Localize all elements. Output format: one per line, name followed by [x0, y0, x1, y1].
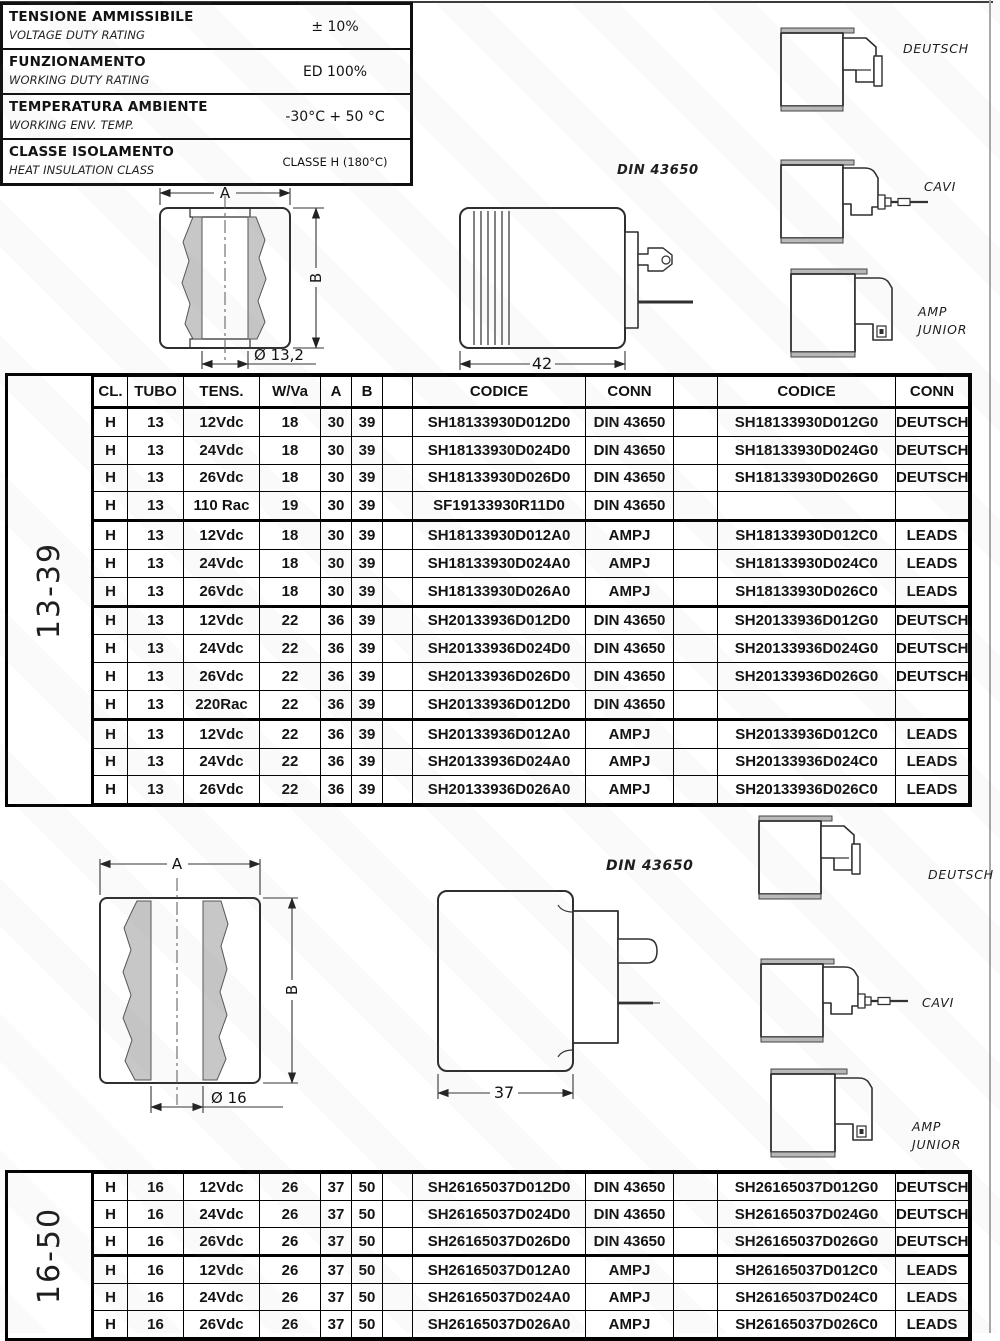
cell-codice-2: SH20133936D024C0 [718, 748, 896, 776]
cell-tens: 26Vdc [184, 1311, 260, 1338]
spec-label-english: WORKING DUTY RATING [9, 73, 260, 87]
cell-tubo: 13 [128, 464, 184, 492]
cell-codice-2: SH26165037D012C0 [718, 1256, 896, 1284]
cell-codice-2 [718, 690, 896, 719]
cell-conn-1: AMPJ [586, 1256, 674, 1284]
cell-codice-1: SH18133930D026A0 [413, 577, 586, 606]
cell-spacer [383, 464, 413, 492]
spec-labels: TENSIONE AMMISSIBILE VOLTAGE DUTY RATING [3, 5, 260, 48]
cell-codice-1: SH18133930D026D0 [413, 464, 586, 492]
cell-spacer-2 [674, 606, 718, 635]
cell-conn-2: DEUTSCH [896, 464, 969, 492]
cell-spacer-2 [674, 521, 718, 550]
cell-spacer [383, 1174, 413, 1201]
table-row: H 13 220Rac 22 36 39 SH20133936D012D0 DI… [94, 690, 969, 719]
cell-codice-2: SH20133936D012G0 [718, 606, 896, 635]
spec-value: ED 100% [260, 50, 410, 93]
cell-a: 37 [321, 1228, 352, 1256]
cell-conn-1: DIN 43650 [586, 436, 674, 464]
cell-conn-2: DEUTSCH [896, 1174, 969, 1201]
cell-spacer [383, 549, 413, 577]
cell-spacer-2 [674, 492, 718, 521]
cell-b: 39 [352, 719, 383, 748]
cell-codice-1: SH18133930D012D0 [413, 408, 586, 437]
din-connector-block [573, 911, 618, 1043]
spec-label-italian: TEMPERATURA AMBIENTE [9, 99, 260, 115]
cell-tens: 12Vdc [184, 719, 260, 748]
cell-spacer [383, 690, 413, 719]
cell-spacer-2 [674, 635, 718, 663]
cell-conn-1: AMPJ [586, 549, 674, 577]
cell-b: 50 [352, 1256, 383, 1284]
cell-spacer-2 [674, 1174, 718, 1201]
spec-row: TENSIONE AMMISSIBILE VOLTAGE DUTY RATING… [3, 5, 410, 50]
cell-cl: H [94, 776, 128, 804]
cell-conn-1: AMPJ [586, 1311, 674, 1338]
cell-spacer-2 [674, 719, 718, 748]
cell-tubo: 16 [128, 1201, 184, 1228]
cell-codice-2: SH20133936D024G0 [718, 635, 896, 663]
header-wva: W/Va [260, 377, 321, 408]
header-row: CL. TUBO TENS. W/Va A B CODICE CONN CODI… [94, 377, 969, 408]
cell-tubo: 13 [128, 577, 184, 606]
spec-value: -30°C + 50 °C [260, 95, 410, 138]
spec-label-english: VOLTAGE DUTY RATING [9, 28, 260, 42]
coil-cross-section-drawing-1: A B Ø 13,2 [148, 183, 333, 373]
cell-wva: 26 [260, 1256, 321, 1284]
cell-codice-2: SH18133930D026G0 [718, 464, 896, 492]
cell-spacer [383, 776, 413, 804]
cell-codice-1: SH20133936D012D0 [413, 690, 586, 719]
cell-b: 50 [352, 1174, 383, 1201]
cell-spacer-2 [674, 408, 718, 437]
cell-b: 39 [352, 408, 383, 437]
cell-spacer-2 [674, 1228, 718, 1256]
cell-conn-1: AMPJ [586, 577, 674, 606]
group-label: 13-39 [32, 541, 67, 638]
header-codice-1: CODICE [413, 377, 586, 408]
cell-codice-1: SH26165037D024A0 [413, 1284, 586, 1311]
cell-wva: 22 [260, 690, 321, 719]
cell-a: 36 [321, 663, 352, 691]
cell-codice-2: SH18133930D012C0 [718, 521, 896, 550]
spec-label-italian: FUNZIONAMENTO [9, 54, 260, 70]
cell-a: 37 [321, 1201, 352, 1228]
cell-conn-1: DIN 43650 [586, 492, 674, 521]
cell-spacer [383, 1311, 413, 1338]
cell-tens: 110 Rac [184, 492, 260, 521]
table-row: H 13 12Vdc 22 36 39 SH20133936D012D0 DIN… [94, 606, 969, 635]
cell-conn-2: LEADS [896, 719, 969, 748]
cell-conn-2: LEADS [896, 1311, 969, 1338]
cell-a: 36 [321, 776, 352, 804]
cell-wva: 26 [260, 1228, 321, 1256]
cell-wva: 22 [260, 719, 321, 748]
cell-wva: 19 [260, 492, 321, 521]
cell-tubo: 16 [128, 1174, 184, 1201]
din-pin-large [618, 939, 657, 963]
cell-cl: H [94, 1256, 128, 1284]
cell-cl: H [94, 1311, 128, 1338]
cell-spacer-2 [674, 690, 718, 719]
cell-cl: H [94, 1284, 128, 1311]
cell-conn-1: DIN 43650 [586, 690, 674, 719]
cell-spacer-2 [674, 748, 718, 776]
cell-spacer [383, 1228, 413, 1256]
cell-wva: 18 [260, 577, 321, 606]
dim-label-diameter: Ø 16 [211, 1089, 247, 1107]
cell-tubo: 16 [128, 1228, 184, 1256]
cell-conn-2: LEADS [896, 1256, 969, 1284]
cell-a: 30 [321, 549, 352, 577]
cell-spacer [383, 521, 413, 550]
deutsch-label-2: DEUTSCH [928, 866, 994, 884]
cell-a: 36 [321, 690, 352, 719]
cell-codice-2: SH18133930D026C0 [718, 577, 896, 606]
din-connector-tab [638, 248, 672, 271]
cell-codice-2: SH26165037D024G0 [718, 1201, 896, 1228]
cell-tens: 12Vdc [184, 521, 260, 550]
cell-conn-2: LEADS [896, 577, 969, 606]
table-row: H 13 24Vdc 22 36 39 SH20133936D024D0 DIN… [94, 635, 969, 663]
amp-junior-label-1: AMP JUNIOR [918, 303, 967, 339]
cell-wva: 18 [260, 464, 321, 492]
table-row: H 13 26Vdc 18 30 39 SH18133930D026D0 DIN… [94, 464, 969, 492]
cell-tens: 12Vdc [184, 408, 260, 437]
dim-label-37: 37 [494, 1083, 514, 1102]
spec-value: CLASSE H (180°C) [260, 140, 410, 183]
header-a: A [321, 377, 352, 408]
table-row: H 16 26Vdc 26 37 50 SH26165037D026A0 AMP… [94, 1311, 969, 1338]
table-row: H 13 24Vdc 22 36 39 SH20133936D024A0 AMP… [94, 748, 969, 776]
cell-wva: 22 [260, 635, 321, 663]
cell-a: 37 [321, 1311, 352, 1338]
cell-wva: 22 [260, 748, 321, 776]
cell-cl: H [94, 521, 128, 550]
cell-tens: 24Vdc [184, 1201, 260, 1228]
cell-tens: 26Vdc [184, 663, 260, 691]
cell-codice-2: SH26165037D026C0 [718, 1311, 896, 1338]
cell-codice-1: SH20133936D026A0 [413, 776, 586, 804]
data-table: H 16 12Vdc 26 37 50 SH26165037D012D0 DIN… [93, 1173, 969, 1338]
cell-cl: H [94, 464, 128, 492]
cell-spacer-2 [674, 1284, 718, 1311]
cell-wva: 18 [260, 408, 321, 437]
cell-codice-2: SH18133930D012G0 [718, 408, 896, 437]
din-coil-drawing-2: 37 [420, 853, 670, 1103]
cell-cl: H [94, 492, 128, 521]
cell-spacer [383, 577, 413, 606]
cell-tubo: 13 [128, 690, 184, 719]
cell-conn-2: LEADS [896, 549, 969, 577]
cell-conn-2: DEUTSCH [896, 635, 969, 663]
cell-wva: 22 [260, 776, 321, 804]
group-label-box: 16-50 [8, 1173, 93, 1338]
cell-conn-1: AMPJ [586, 521, 674, 550]
spec-row: TEMPERATURA AMBIENTE WORKING ENV. TEMP. … [3, 95, 410, 140]
table-row: H 16 26Vdc 26 37 50 SH26165037D026D0 DIN… [94, 1228, 969, 1256]
cell-codice-1: SF19133930R11D0 [413, 492, 586, 521]
header-conn-1: CONN [586, 377, 674, 408]
dim-label-b: B [307, 273, 325, 283]
cell-wva: 26 [260, 1284, 321, 1311]
cell-conn-1: DIN 43650 [586, 1228, 674, 1256]
cavi-label-2: CAVI [922, 994, 954, 1012]
din-43650-label-1: DIN 43650 [617, 163, 699, 178]
coil-cross-section-drawing-2: A B Ø 16 [85, 833, 315, 1118]
table-row: H 13 26Vdc 22 36 39 SH20133936D026A0 AMP… [94, 776, 969, 804]
cell-tubo: 13 [128, 663, 184, 691]
cell-wva: 22 [260, 606, 321, 635]
table-row: H 13 12Vdc 22 36 39 SH20133936D012A0 AMP… [94, 719, 969, 748]
cell-conn-2 [896, 492, 969, 521]
cell-tubo: 13 [128, 748, 184, 776]
cell-spacer-2 [674, 663, 718, 691]
cell-conn-1: AMPJ [586, 748, 674, 776]
cell-cl: H [94, 1174, 128, 1201]
cell-tubo: 13 [128, 436, 184, 464]
amp-junior-connector-drawing-1 [788, 266, 908, 366]
cell-b: 39 [352, 748, 383, 776]
cell-conn-1: DIN 43650 [586, 408, 674, 437]
cell-conn-2: DEUTSCH [896, 1201, 969, 1228]
cell-tubo: 13 [128, 606, 184, 635]
cell-wva: 18 [260, 549, 321, 577]
cell-codice-1: SH26165037D026D0 [413, 1228, 586, 1256]
dim-label-b: B [283, 985, 301, 995]
cell-tens: 12Vdc [184, 606, 260, 635]
header-tubo: TUBO [128, 377, 184, 408]
coil-body-outline [100, 898, 260, 1083]
cell-b: 39 [352, 549, 383, 577]
cell-conn-1: AMPJ [586, 1284, 674, 1311]
spec-row: FUNZIONAMENTO WORKING DUTY RATING ED 100… [3, 50, 410, 95]
cell-a: 36 [321, 748, 352, 776]
cell-codice-2: SH20133936D012C0 [718, 719, 896, 748]
cavi-label-1: CAVI [924, 178, 956, 196]
cell-tubo: 16 [128, 1284, 184, 1311]
cell-conn-1: DIN 43650 [586, 635, 674, 663]
cell-codice-1: SH18133930D012A0 [413, 521, 586, 550]
cell-codice-2: SH18133930D024C0 [718, 549, 896, 577]
table-row: H 13 24Vdc 18 30 39 SH18133930D024D0 DIN… [94, 436, 969, 464]
cell-spacer-2 [674, 549, 718, 577]
cell-conn-2: DEUTSCH [896, 436, 969, 464]
deutsch-connector-drawing-1 [778, 25, 893, 117]
cell-codice-2: SH18133930D024G0 [718, 436, 896, 464]
cell-a: 30 [321, 436, 352, 464]
cell-conn-2 [896, 690, 969, 719]
cell-conn-2: LEADS [896, 748, 969, 776]
cell-a: 30 [321, 521, 352, 550]
cell-b: 50 [352, 1284, 383, 1311]
cell-cl: H [94, 1228, 128, 1256]
cell-b: 39 [352, 635, 383, 663]
cell-spacer [383, 492, 413, 521]
cell-spacer [383, 606, 413, 635]
cell-conn-1: DIN 43650 [586, 663, 674, 691]
cell-spacer [383, 663, 413, 691]
cell-spacer-2 [674, 1201, 718, 1228]
cell-codice-1: SH26165037D012A0 [413, 1256, 586, 1284]
cell-conn-1: AMPJ [586, 776, 674, 804]
cell-cl: H [94, 635, 128, 663]
cell-b: 50 [352, 1311, 383, 1338]
table-row: H 13 26Vdc 18 30 39 SH18133930D026A0 AMP… [94, 577, 969, 606]
deutsch-label-1: DEUTSCH [903, 40, 969, 58]
cell-tens: 24Vdc [184, 436, 260, 464]
cell-codice-1: SH18133930D024A0 [413, 549, 586, 577]
cell-a: 36 [321, 606, 352, 635]
cell-cl: H [94, 748, 128, 776]
amp-junior-connector-drawing-2 [768, 1066, 888, 1166]
spec-label-english: HEAT INSULATION CLASS [9, 163, 260, 177]
cell-b: 39 [352, 776, 383, 804]
table-row: H 13 12Vdc 18 30 39 SH18133930D012A0 AMP… [94, 521, 969, 550]
din-coil-body [460, 208, 625, 348]
din-coil-drawing-1: 42 [450, 190, 710, 375]
cell-b: 39 [352, 492, 383, 521]
dim-label-42: 42 [532, 354, 552, 373]
cell-codice-2: SH20133936D026G0 [718, 663, 896, 691]
table-row: H 16 12Vdc 26 37 50 SH26165037D012D0 DIN… [94, 1174, 969, 1201]
cell-tubo: 13 [128, 549, 184, 577]
cell-a: 30 [321, 577, 352, 606]
cell-codice-2: SH26165037D026G0 [718, 1228, 896, 1256]
cell-tubo: 13 [128, 635, 184, 663]
cell-spacer [383, 1284, 413, 1311]
spec-value: ± 10% [260, 5, 410, 48]
cell-b: 39 [352, 606, 383, 635]
cell-conn-2: LEADS [896, 521, 969, 550]
header-codice-2: CODICE [718, 377, 896, 408]
cell-a: 37 [321, 1174, 352, 1201]
din-coil-body [438, 891, 573, 1071]
cell-b: 39 [352, 521, 383, 550]
cell-conn-2: DEUTSCH [896, 408, 969, 437]
cell-wva: 22 [260, 663, 321, 691]
header-spacer [383, 377, 413, 408]
spec-table: TENSIONE AMMISSIBILE VOLTAGE DUTY RATING… [0, 2, 413, 186]
cell-tubo: 13 [128, 719, 184, 748]
cell-wva: 26 [260, 1311, 321, 1338]
cell-cl: H [94, 408, 128, 437]
cell-cl: H [94, 690, 128, 719]
cell-spacer [383, 719, 413, 748]
cell-b: 39 [352, 464, 383, 492]
cell-cl: H [94, 549, 128, 577]
cell-conn-2: DEUTSCH [896, 606, 969, 635]
cell-b: 39 [352, 690, 383, 719]
coil-table-13-39: 13-39 CL. TUBO TENS. W/Va A B CODICE CON… [5, 373, 972, 807]
group-label-box: 13-39 [8, 376, 93, 804]
cell-wva: 26 [260, 1201, 321, 1228]
page: { "specs": { "rows": [ {"it": "TENSIONE … [0, 0, 1000, 1333]
cell-codice-1: SH20133936D024A0 [413, 748, 586, 776]
cell-b: 50 [352, 1201, 383, 1228]
cell-b: 39 [352, 577, 383, 606]
cell-codice-1: SH20133936D024D0 [413, 635, 586, 663]
cell-codice-2: SH20133936D026C0 [718, 776, 896, 804]
cell-spacer-2 [674, 464, 718, 492]
cell-a: 36 [321, 635, 352, 663]
table-row: H 13 26Vdc 22 36 39 SH20133936D026D0 DIN… [94, 663, 969, 691]
din-connector-plate [625, 232, 638, 328]
cell-tens: 26Vdc [184, 464, 260, 492]
cell-tens: 26Vdc [184, 776, 260, 804]
data-table: CL. TUBO TENS. W/Va A B CODICE CONN CODI… [93, 376, 969, 804]
cell-tubo: 16 [128, 1311, 184, 1338]
cell-tens: 24Vdc [184, 1284, 260, 1311]
cell-conn-1: DIN 43650 [586, 1201, 674, 1228]
dim-label-a: A [220, 184, 231, 202]
cavi-connector-drawing-1 [778, 157, 933, 249]
cell-tubo: 13 [128, 776, 184, 804]
cell-tubo: 13 [128, 521, 184, 550]
cell-wva: 18 [260, 521, 321, 550]
cell-tubo: 16 [128, 1256, 184, 1284]
cell-conn-1: DIN 43650 [586, 606, 674, 635]
spec-labels: FUNZIONAMENTO WORKING DUTY RATING [3, 50, 260, 93]
cell-a: 37 [321, 1256, 352, 1284]
table-row: H 16 24Vdc 26 37 50 SH26165037D024D0 DIN… [94, 1201, 969, 1228]
cell-b: 39 [352, 436, 383, 464]
cell-codice-2 [718, 492, 896, 521]
cell-cl: H [94, 719, 128, 748]
cell-conn-1: DIN 43650 [586, 464, 674, 492]
amp-junior-label-2: AMP JUNIOR [912, 1118, 961, 1154]
cell-cl: H [94, 577, 128, 606]
spec-labels: TEMPERATURA AMBIENTE WORKING ENV. TEMP. [3, 95, 260, 138]
cell-conn-1: AMPJ [586, 719, 674, 748]
cell-codice-1: SH20133936D012A0 [413, 719, 586, 748]
cell-spacer-2 [674, 776, 718, 804]
header-conn-2: CONN [896, 377, 969, 408]
cell-a: 37 [321, 1284, 352, 1311]
cell-tens: 26Vdc [184, 577, 260, 606]
cell-spacer-2 [674, 1256, 718, 1284]
coil-table-16-50: 16-50 H 16 12Vdc 26 37 50 SH26165037D012… [5, 1170, 972, 1341]
cell-codice-1: SH18133930D024D0 [413, 436, 586, 464]
cell-codice-1: SH26165037D024D0 [413, 1201, 586, 1228]
cell-tens: 24Vdc [184, 635, 260, 663]
cell-a: 30 [321, 464, 352, 492]
cell-tens: 220Rac [184, 690, 260, 719]
spec-label-english: WORKING ENV. TEMP. [9, 118, 260, 132]
cell-cl: H [94, 606, 128, 635]
cell-b: 50 [352, 1228, 383, 1256]
cell-codice-1: SH26165037D026A0 [413, 1311, 586, 1338]
cell-tens: 24Vdc [184, 748, 260, 776]
cell-cl: H [94, 1201, 128, 1228]
cell-conn-1: DIN 43650 [586, 1174, 674, 1201]
cell-conn-2: DEUTSCH [896, 1228, 969, 1256]
cell-codice-1: SH26165037D012D0 [413, 1174, 586, 1201]
cell-tubo: 13 [128, 408, 184, 437]
dim-label-diameter: Ø 13,2 [254, 346, 304, 364]
cell-spacer [383, 1201, 413, 1228]
cell-conn-2: DEUTSCH [896, 663, 969, 691]
dim-label-a: A [172, 855, 183, 873]
table-row: H 13 24Vdc 18 30 39 SH18133930D024A0 AMP… [94, 549, 969, 577]
spec-row: CLASSE ISOLAMENTO HEAT INSULATION CLASS … [3, 140, 410, 183]
cell-wva: 18 [260, 436, 321, 464]
cell-conn-2: LEADS [896, 1284, 969, 1311]
header-tens: TENS. [184, 377, 260, 408]
group-label: 16-50 [32, 1207, 67, 1304]
cell-cl: H [94, 436, 128, 464]
cell-spacer-2 [674, 1311, 718, 1338]
